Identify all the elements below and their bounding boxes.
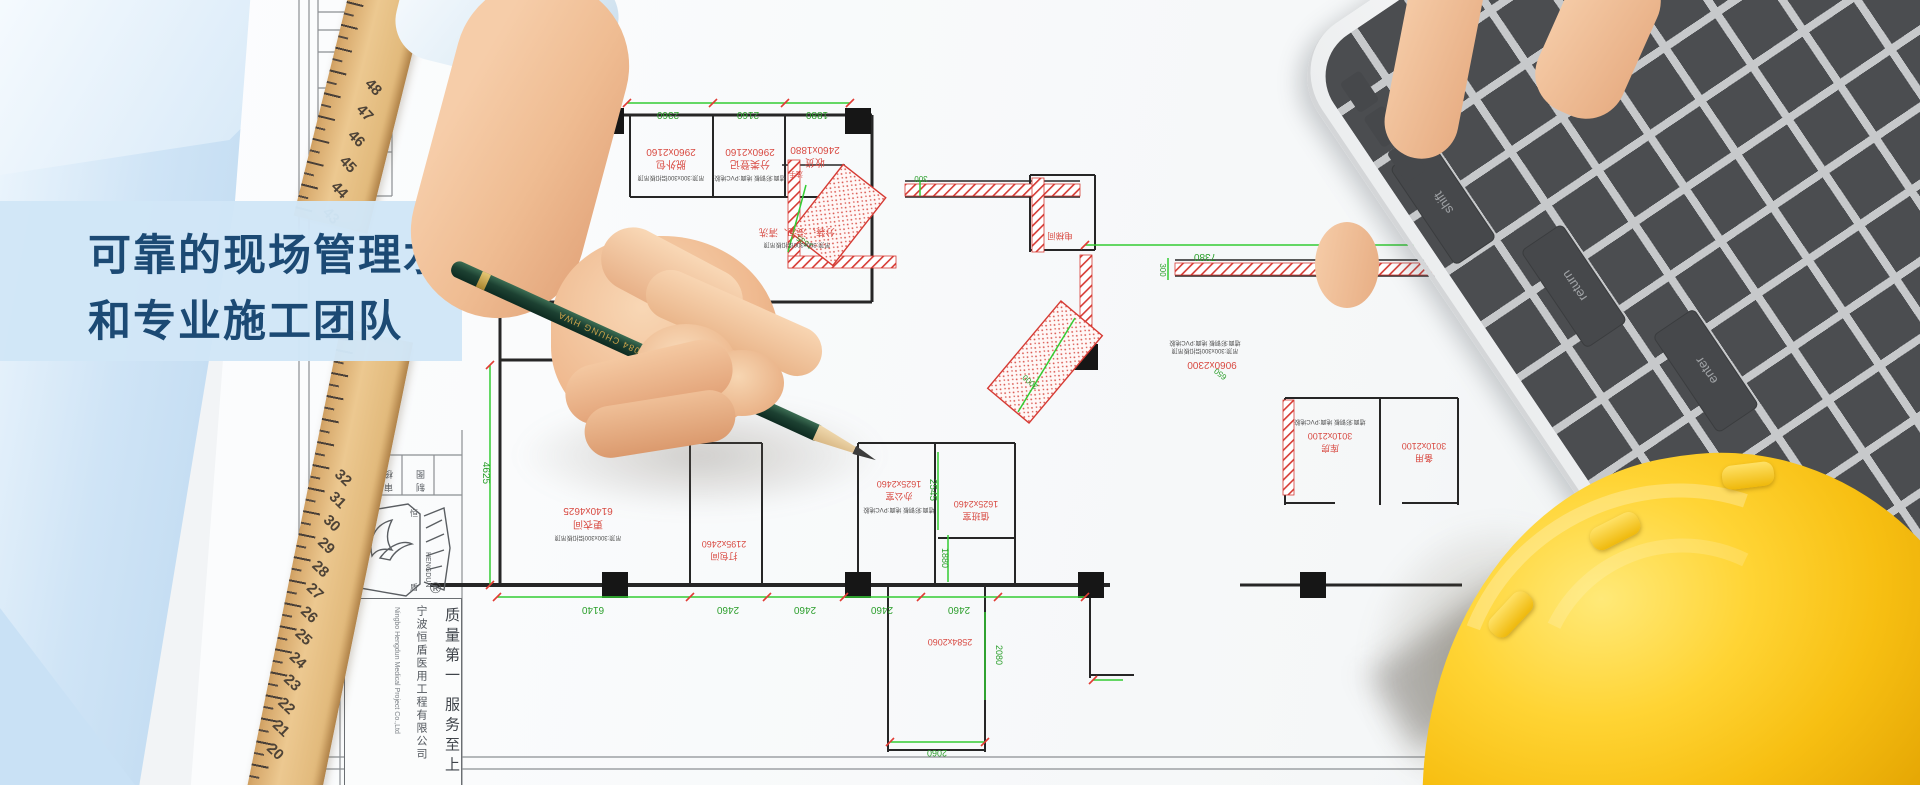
svg-text:300: 300 xyxy=(1158,263,1167,277)
svg-text:2460: 2460 xyxy=(870,604,893,615)
svg-text:9060x2300: 9060x2300 xyxy=(1187,359,1237,370)
svg-text:吊顶:300x300铝扣板吊顶: 吊顶:300x300铝扣板吊顶 xyxy=(638,174,705,182)
svg-text:分类登记: 分类登记 xyxy=(730,158,770,171)
svg-text:2195x2460: 2195x2460 xyxy=(702,539,747,549)
svg-text:2460: 2460 xyxy=(716,604,739,615)
svg-text:1880: 1880 xyxy=(940,548,950,568)
svg-text:6140: 6140 xyxy=(581,604,604,615)
svg-text:1880: 1880 xyxy=(805,109,828,120)
svg-text:办公室: 办公室 xyxy=(885,491,912,502)
svg-text:7380: 7380 xyxy=(1193,251,1216,262)
svg-text:2360: 2360 xyxy=(656,109,679,120)
svg-text:脱外包: 脱外包 xyxy=(656,158,686,171)
svg-text:盾: 盾 xyxy=(410,582,418,592)
svg-text:墙面:彩钢板 地面:PVC地胶: 墙面:彩钢板 地面:PVC地胶 xyxy=(1169,339,1240,347)
svg-text:电梯间: 电梯间 xyxy=(1047,231,1073,241)
slogan-text: 质量第一 服务至上 xyxy=(441,607,462,776)
company-name-cn: 宁波恒盾医用工程有限公司 xyxy=(413,605,429,761)
svg-text:2960x2160: 2960x2160 xyxy=(725,146,775,157)
svg-text:墙面:彩钢板 地面:PVC地胶: 墙面:彩钢板 地面:PVC地胶 xyxy=(714,174,785,182)
svg-text:2584x2060: 2584x2060 xyxy=(928,637,973,647)
hat-rib xyxy=(1721,461,1776,491)
svg-text:2960x2160: 2960x2160 xyxy=(646,146,696,157)
svg-text:恒: 恒 xyxy=(410,508,418,518)
svg-text:3010x2100: 3010x2100 xyxy=(1308,431,1353,441)
svg-text:2545: 2545 xyxy=(927,479,938,502)
pencil-gold-band xyxy=(476,271,491,290)
svg-text:2060: 2060 xyxy=(927,748,947,758)
svg-text:1625x2460: 1625x2460 xyxy=(954,499,999,509)
svg-text:墙面:彩钢板 地面:PVC地胶: 墙面:彩钢板 地面:PVC地胶 xyxy=(1294,418,1365,426)
svg-text:洗手: 洗手 xyxy=(789,170,803,179)
svg-text:300: 300 xyxy=(914,174,928,183)
company-box: 质量第一 服务至上 宁波恒盾医用工程有限公司 Ningbo Hengdun Me… xyxy=(344,598,462,785)
svg-text:更衣间: 更衣间 xyxy=(573,518,603,531)
plan-hatch-walls xyxy=(788,160,1452,495)
svg-text:1625x2460: 1625x2460 xyxy=(877,479,922,489)
svg-text:4625: 4625 xyxy=(480,462,491,485)
svg-text:墙面:彩钢板 地面:PVC地胶: 墙面:彩钢板 地面:PVC地胶 xyxy=(863,506,934,514)
svg-text:吊顶:300x300铝扣板吊顶: 吊顶:300x300铝扣板吊顶 xyxy=(555,534,622,542)
svg-text:库房: 库房 xyxy=(1321,443,1339,454)
svg-text:吊顶:300x300铝扣板吊顶: 吊顶:300x300铝扣板吊顶 xyxy=(1172,347,1239,355)
svg-text:3010x2100: 3010x2100 xyxy=(1402,441,1447,451)
svg-text:分装、浸泡、清洗: 分装、浸泡、清洗 xyxy=(759,226,836,238)
svg-text:2460: 2460 xyxy=(793,604,816,615)
pointing-fingertip xyxy=(1315,222,1379,308)
review-label: 制图 xyxy=(416,468,425,494)
svg-text:2160: 2160 xyxy=(736,109,759,120)
svg-text:吊顶:300x300铝扣板吊顶: 吊顶:300x300铝扣板吊顶 xyxy=(764,241,831,249)
headline-line2: 和专业施工团队 xyxy=(88,287,403,349)
svg-text:备用: 备用 xyxy=(1415,453,1433,464)
hero-banner: 1:100 平面布置图 xyxy=(0,0,1920,785)
registered-mark: ® xyxy=(430,580,441,597)
plan-equipment-zones xyxy=(790,164,1102,423)
headline-panel: 可靠的现场管理水平 和专业施工团队 xyxy=(0,201,462,361)
company-name-en: Ningbo Hengdun Medical Project Co.,Ltd xyxy=(393,607,400,734)
svg-text:值班室: 值班室 xyxy=(962,511,989,522)
svg-text:2460: 2460 xyxy=(947,604,970,615)
svg-text:2460x1880: 2460x1880 xyxy=(790,144,840,155)
svg-text:6140x4625: 6140x4625 xyxy=(563,505,613,516)
svg-text:2080: 2080 xyxy=(994,645,1004,665)
svg-text:收货: 收货 xyxy=(805,156,825,169)
svg-text:打包间: 打包间 xyxy=(710,551,737,562)
